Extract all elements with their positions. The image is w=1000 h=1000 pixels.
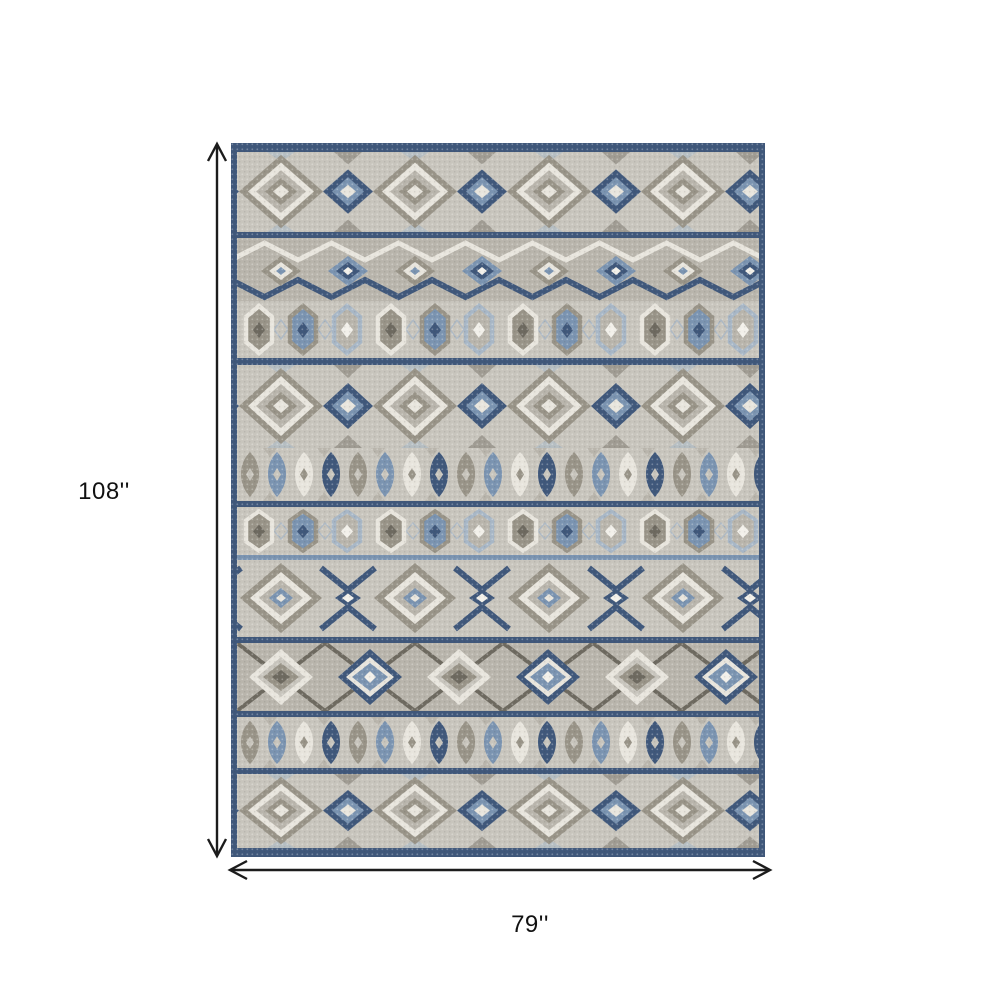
- arrowhead-down-icon: [208, 839, 226, 856]
- height-dimension-arrow: [208, 144, 226, 856]
- rug-image: [230, 143, 766, 857]
- arrowhead-right-icon: [753, 861, 770, 879]
- arrowhead-left-icon: [230, 861, 247, 879]
- arrowhead-up-icon: [208, 144, 226, 161]
- rug-texture-overlay: [231, 143, 765, 857]
- width-dimension-arrow: [230, 861, 770, 879]
- width-dimension-label: 79'': [485, 910, 575, 940]
- rug-dimension-diagram: 108'' 79'': [0, 0, 1000, 1000]
- height-dimension-label: 108'': [59, 477, 149, 507]
